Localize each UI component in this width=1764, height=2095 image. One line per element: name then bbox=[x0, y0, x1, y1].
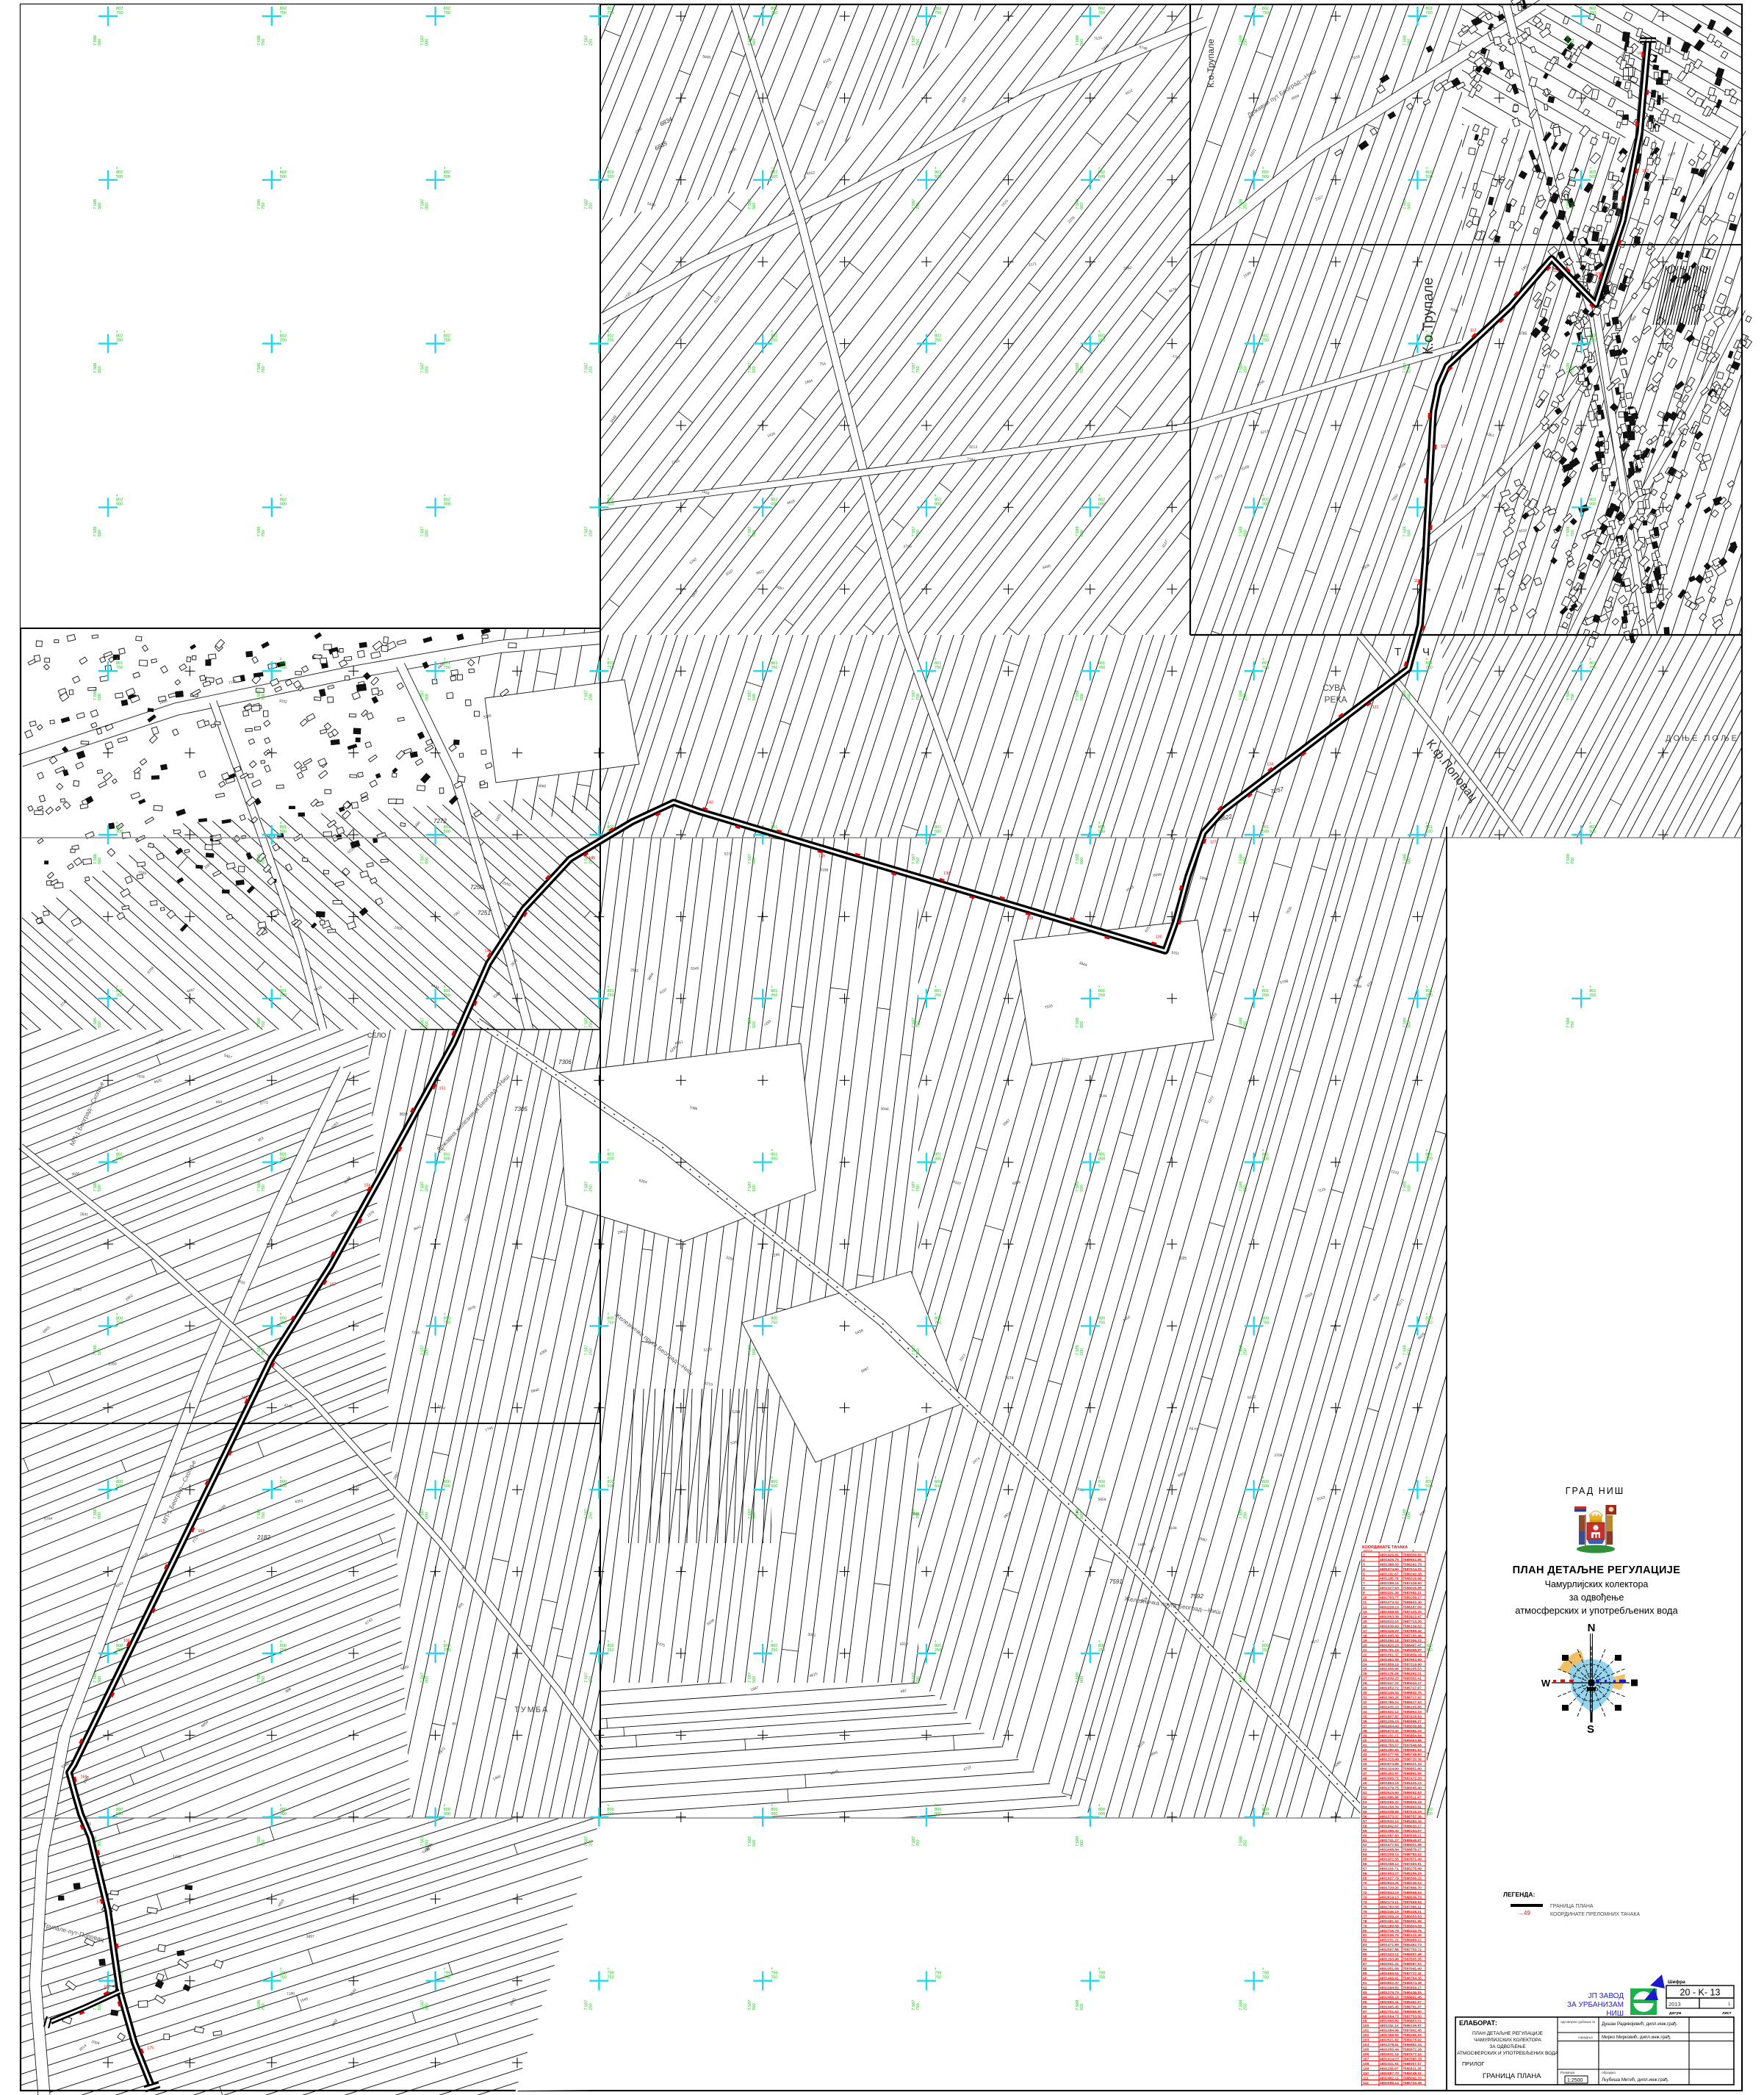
svg-text:7587580.78: 7587580.78 bbox=[1403, 2058, 1422, 2062]
svg-text:N: N bbox=[1588, 1622, 1596, 1634]
svg-text:7587713.20: 7587713.20 bbox=[1403, 1620, 1422, 1624]
svg-text:118: 118 bbox=[1414, 579, 1421, 583]
svg-text:250: 250 bbox=[1244, 530, 1248, 536]
svg-text:85: 85 bbox=[1363, 1952, 1367, 1957]
svg-text:500: 500 bbox=[98, 1021, 102, 1027]
svg-text:атмосферских и употребљених во: атмосферских и употребљених вода bbox=[1515, 1605, 1678, 1616]
svg-text:750: 750 bbox=[262, 202, 266, 209]
svg-text:4801645.39: 4801645.39 bbox=[1380, 1634, 1399, 1638]
svg-text:4: 4 bbox=[1262, 330, 1264, 334]
svg-text:160: 160 bbox=[242, 1396, 248, 1401]
svg-text:обрадио: обрадио bbox=[1602, 2071, 1616, 2075]
svg-text:4: 4 bbox=[771, 1312, 773, 1315]
svg-text:000: 000 bbox=[280, 1157, 287, 1162]
svg-text:3706: 3706 bbox=[1274, 1453, 1282, 1458]
svg-text:7587306.23: 7587306.23 bbox=[1403, 1639, 1422, 1643]
svg-text:000: 000 bbox=[425, 1021, 430, 1027]
svg-text:60: 60 bbox=[1363, 1833, 1367, 1838]
svg-text:000: 000 bbox=[425, 694, 430, 700]
svg-text:000: 000 bbox=[425, 366, 430, 373]
svg-text:4: 4 bbox=[771, 330, 773, 334]
svg-text:21: 21 bbox=[1363, 1648, 1367, 1653]
svg-text:102: 102 bbox=[1363, 2033, 1369, 2038]
svg-text:750: 750 bbox=[280, 1976, 287, 1980]
svg-text:250: 250 bbox=[588, 1021, 593, 1027]
svg-text:4802515.60: 4802515.60 bbox=[1380, 1791, 1399, 1795]
svg-text:2735: 2735 bbox=[904, 545, 912, 549]
svg-text:4: 4 bbox=[116, 166, 118, 170]
svg-text:500: 500 bbox=[1407, 1512, 1411, 1519]
svg-text:4802802.37: 4802802.37 bbox=[1380, 1981, 1399, 1986]
svg-text:73: 73 bbox=[1363, 1895, 1367, 1900]
svg-text:250: 250 bbox=[588, 39, 593, 46]
svg-text:500: 500 bbox=[1407, 1021, 1411, 1027]
svg-text:3046: 3046 bbox=[880, 1107, 889, 1112]
svg-text:4802168.55: 4802168.55 bbox=[1380, 2033, 1399, 2038]
svg-text:7586105.85: 7586105.85 bbox=[1403, 1706, 1422, 1710]
svg-text:4: 4 bbox=[771, 1803, 773, 1807]
svg-text:ЛЕГЕНДА:: ЛЕГЕНДА: bbox=[1503, 1891, 1535, 1898]
svg-text:77: 77 bbox=[1363, 1914, 1367, 1919]
svg-text:7587622.47: 7587622.47 bbox=[1403, 1615, 1422, 1620]
svg-text:4: 4 bbox=[1425, 2, 1428, 6]
svg-text:750: 750 bbox=[1098, 1976, 1105, 1980]
svg-text:250: 250 bbox=[588, 1348, 593, 1355]
svg-text:112: 112 bbox=[1470, 328, 1477, 333]
svg-text:4: 4 bbox=[116, 330, 118, 334]
svg-text:лист: лист bbox=[1722, 2011, 1732, 2016]
svg-text:27: 27 bbox=[1363, 1677, 1367, 1681]
svg-text:500: 500 bbox=[1407, 694, 1411, 700]
svg-text:4801952.72: 4801952.72 bbox=[1380, 1686, 1399, 1691]
svg-text:4801523.11: 4801523.11 bbox=[1380, 1952, 1399, 1957]
svg-text:500: 500 bbox=[752, 530, 757, 536]
svg-text:5: 5 bbox=[1363, 1572, 1365, 1576]
svg-text:4: 4 bbox=[280, 657, 282, 661]
svg-text:4: 4 bbox=[771, 985, 773, 988]
svg-text:5754: 5754 bbox=[44, 1517, 53, 1522]
svg-text:250: 250 bbox=[1244, 202, 1248, 209]
svg-text:4: 4 bbox=[1262, 1967, 1264, 1971]
svg-text:000: 000 bbox=[1262, 502, 1269, 506]
svg-text:500: 500 bbox=[935, 830, 941, 834]
svg-text:7588502.85: 7588502.85 bbox=[1403, 1558, 1422, 1562]
svg-text:4: 4 bbox=[607, 1639, 609, 1643]
svg-text:750: 750 bbox=[1262, 666, 1269, 670]
svg-text:000: 000 bbox=[444, 1157, 450, 1162]
svg-text:58: 58 bbox=[1363, 1824, 1367, 1828]
svg-text:4801068.12: 4801068.12 bbox=[1380, 1862, 1399, 1866]
svg-text:3: 3 bbox=[1363, 1562, 1365, 1567]
svg-text:750: 750 bbox=[1571, 202, 1575, 209]
svg-text:3839: 3839 bbox=[400, 1113, 408, 1117]
svg-text:1093: 1093 bbox=[73, 1287, 82, 1293]
svg-text:4: 4 bbox=[1098, 2, 1101, 6]
svg-text:16: 16 bbox=[1363, 1625, 1367, 1629]
svg-text:172: 172 bbox=[96, 1900, 103, 1904]
svg-text:54: 54 bbox=[1363, 1805, 1367, 1810]
svg-text:750: 750 bbox=[1571, 858, 1575, 864]
svg-text:111: 111 bbox=[1363, 2076, 1369, 2080]
svg-text:4801152.21: 4801152.21 bbox=[1380, 1733, 1399, 1738]
svg-text:W: W bbox=[1541, 1678, 1551, 1689]
svg-text:4801324.90: 4801324.90 bbox=[1380, 1767, 1399, 1772]
svg-text:4164: 4164 bbox=[1580, 277, 1588, 281]
svg-text:750: 750 bbox=[771, 11, 777, 15]
svg-text:3108: 3108 bbox=[1169, 1526, 1177, 1531]
svg-text:7588791.37: 7588791.37 bbox=[1403, 2005, 1422, 2009]
svg-text:7585538.21: 7585538.21 bbox=[1403, 1833, 1422, 1838]
svg-text:250: 250 bbox=[1244, 1185, 1248, 1191]
svg-text:35: 35 bbox=[1363, 1715, 1367, 1720]
svg-text:7586052.63: 7586052.63 bbox=[1403, 1791, 1422, 1795]
svg-text:127: 127 bbox=[1210, 840, 1217, 844]
svg-text:750: 750 bbox=[1262, 1320, 1269, 1325]
svg-text:250: 250 bbox=[588, 1676, 593, 1683]
svg-text:7585039.88: 7585039.88 bbox=[1403, 1724, 1422, 1728]
svg-text:7587753.50: 7587753.50 bbox=[1403, 2014, 1422, 2019]
svg-text:99: 99 bbox=[1363, 2019, 1367, 2024]
svg-text:7586105.53: 7586105.53 bbox=[1403, 1667, 1422, 1672]
svg-text:53: 53 bbox=[1363, 1800, 1367, 1805]
svg-text:7586804.69: 7586804.69 bbox=[1403, 1924, 1422, 1928]
svg-text:4: 4 bbox=[1425, 985, 1428, 988]
svg-text:7587450.91: 7587450.91 bbox=[1403, 1862, 1422, 1866]
svg-text:7587552.11: 7587552.11 bbox=[1403, 1591, 1422, 1595]
svg-text:000: 000 bbox=[1098, 502, 1105, 506]
svg-text:000: 000 bbox=[1080, 1185, 1084, 1191]
svg-text:7588187.69: 7588187.69 bbox=[1403, 1606, 1422, 1610]
svg-text:250: 250 bbox=[1244, 39, 1248, 46]
svg-text:000: 000 bbox=[425, 1512, 430, 1519]
svg-text:4: 4 bbox=[116, 1312, 118, 1315]
svg-text:500: 500 bbox=[98, 366, 102, 373]
svg-text:133: 133 bbox=[1026, 916, 1033, 921]
svg-text:750: 750 bbox=[262, 1021, 266, 1027]
svg-text:500: 500 bbox=[752, 1839, 757, 1846]
svg-text:250: 250 bbox=[1589, 339, 1596, 343]
svg-text:7588602.40: 7588602.40 bbox=[1403, 1600, 1422, 1605]
svg-text:500: 500 bbox=[116, 830, 123, 834]
svg-text:750: 750 bbox=[262, 858, 266, 864]
svg-text:Размера: Размера bbox=[1560, 2071, 1574, 2075]
svg-text:4: 4 bbox=[607, 330, 609, 334]
svg-text:7588249.53: 7588249.53 bbox=[1403, 1881, 1422, 1886]
svg-text:500: 500 bbox=[1407, 39, 1411, 46]
svg-text:500: 500 bbox=[1407, 530, 1411, 536]
svg-text:145: 145 bbox=[588, 856, 595, 860]
svg-text:7587902.45: 7587902.45 bbox=[1403, 2029, 1422, 2033]
svg-text:7588806.18: 7588806.18 bbox=[1403, 1800, 1422, 1805]
svg-text:250: 250 bbox=[444, 339, 450, 343]
svg-text:151: 151 bbox=[439, 1087, 446, 1091]
svg-text:000: 000 bbox=[1080, 39, 1084, 46]
svg-text:Мирко Мирковић, дипл.инж.грађ.: Мирко Мирковић, дипл.инж.грађ. bbox=[1602, 2035, 1671, 2040]
svg-text:169: 169 bbox=[81, 1775, 87, 1780]
svg-text:4801842.67: 4801842.67 bbox=[1380, 1824, 1399, 1828]
svg-text:7587559.94: 7587559.94 bbox=[1403, 1900, 1422, 1905]
svg-text:163: 163 bbox=[198, 1529, 205, 1534]
svg-text:4801260.85: 4801260.85 bbox=[1380, 1748, 1399, 1753]
svg-text:750: 750 bbox=[1425, 11, 1432, 15]
svg-text:750: 750 bbox=[262, 1512, 266, 1519]
svg-text:Чамурлијских колектора: Чамурлијских колектора bbox=[1545, 1579, 1649, 1589]
svg-text:80: 80 bbox=[1363, 1929, 1367, 1933]
svg-text:23: 23 bbox=[1363, 1658, 1367, 1662]
svg-text:7586717.92: 7586717.92 bbox=[1403, 1696, 1422, 1700]
svg-text:142: 142 bbox=[707, 801, 713, 805]
svg-text:38: 38 bbox=[1363, 1729, 1367, 1733]
svg-text:250: 250 bbox=[935, 993, 941, 998]
svg-text:4801863.16: 4801863.16 bbox=[1380, 1781, 1399, 1786]
svg-text:4802466.89: 4802466.89 bbox=[1380, 2019, 1399, 2024]
svg-text:1433: 1433 bbox=[173, 1855, 181, 1859]
svg-text:29: 29 bbox=[1363, 1686, 1367, 1691]
svg-text:000: 000 bbox=[1425, 1157, 1432, 1162]
svg-text:4: 4 bbox=[935, 1476, 937, 1479]
svg-text:7585863.33: 7585863.33 bbox=[1403, 1710, 1422, 1714]
svg-text:АТМОСФЕРСКИХ И УПОТРЕБЉЕНИХ ВО: АТМОСФЕРСКИХ И УПОТРЕБЉЕНИХ ВОДА bbox=[1457, 2051, 1558, 2056]
svg-text:000: 000 bbox=[425, 39, 430, 46]
svg-text:7587100.46: 7587100.46 bbox=[1403, 1634, 1422, 1638]
svg-text:500: 500 bbox=[98, 530, 102, 536]
svg-text:2013: 2013 bbox=[1668, 2001, 1681, 2008]
svg-text:7585972.28: 7585972.28 bbox=[1403, 2048, 1422, 2052]
svg-text:4801390.26: 4801390.26 bbox=[1380, 1696, 1399, 1700]
svg-text:4802145.34: 4802145.34 bbox=[1380, 1691, 1399, 1695]
svg-text:750: 750 bbox=[916, 1185, 921, 1191]
svg-text:250: 250 bbox=[588, 530, 593, 536]
svg-text:82: 82 bbox=[1363, 1938, 1367, 1943]
svg-text:750: 750 bbox=[916, 1348, 921, 1355]
svg-text:750: 750 bbox=[1571, 366, 1575, 373]
svg-text:000: 000 bbox=[935, 502, 941, 506]
svg-text:7587386.11: 7587386.11 bbox=[1403, 1905, 1422, 1909]
svg-text:87: 87 bbox=[1363, 1962, 1367, 1966]
svg-text:500: 500 bbox=[1098, 175, 1105, 179]
svg-text:4: 4 bbox=[935, 1149, 937, 1152]
svg-text:7587903.60: 7587903.60 bbox=[1403, 1658, 1422, 1662]
svg-text:500: 500 bbox=[752, 1512, 757, 1519]
svg-text:4: 4 bbox=[935, 657, 937, 661]
svg-text:750: 750 bbox=[916, 1021, 921, 1027]
svg-text:41: 41 bbox=[1363, 1743, 1367, 1747]
svg-text:4: 4 bbox=[444, 1639, 446, 1643]
svg-text:750: 750 bbox=[935, 1320, 941, 1325]
svg-text:4: 4 bbox=[935, 330, 937, 334]
svg-text:76: 76 bbox=[1363, 1910, 1367, 1914]
svg-text:7588757.36: 7588757.36 bbox=[1403, 1814, 1422, 1819]
svg-text:000: 000 bbox=[1098, 1812, 1105, 1816]
svg-text:500: 500 bbox=[1589, 830, 1596, 834]
svg-text:250: 250 bbox=[1098, 1648, 1105, 1653]
svg-text:7586506.15: 7586506.15 bbox=[1403, 1877, 1422, 1881]
svg-text:59: 59 bbox=[1363, 1829, 1367, 1833]
svg-text:250: 250 bbox=[607, 1648, 613, 1653]
svg-text:750: 750 bbox=[444, 666, 450, 670]
svg-text:71: 71 bbox=[1363, 1886, 1367, 1891]
svg-text:7586053.63: 7586053.63 bbox=[1403, 1914, 1422, 1919]
svg-text:106: 106 bbox=[1595, 272, 1602, 276]
svg-text:ГРАНИЦА ПЛАНА: ГРАНИЦА ПЛАНА bbox=[1550, 1904, 1594, 1909]
svg-text:250: 250 bbox=[588, 202, 593, 209]
svg-text:7306: 7306 bbox=[558, 1059, 572, 1066]
svg-text:4801925.75: 4801925.75 bbox=[1380, 1558, 1399, 1562]
svg-text:91: 91 bbox=[1363, 1981, 1367, 1986]
svg-text:000: 000 bbox=[1262, 1812, 1269, 1816]
svg-text:ТУМБА: ТУМБА bbox=[514, 1706, 549, 1714]
svg-text:4: 4 bbox=[935, 2, 937, 6]
svg-text:4801205.15: 4801205.15 bbox=[1380, 1720, 1399, 1724]
svg-text:500: 500 bbox=[444, 830, 450, 834]
svg-text:7588536.73: 7588536.73 bbox=[1403, 1895, 1422, 1900]
svg-text:750: 750 bbox=[262, 1839, 266, 1846]
svg-text:500: 500 bbox=[1425, 175, 1432, 179]
svg-text:10: 10 bbox=[1363, 1596, 1367, 1600]
svg-text:7586981.83: 7586981.83 bbox=[1403, 1748, 1422, 1753]
svg-text:4: 4 bbox=[1425, 1476, 1428, 1479]
svg-text:93: 93 bbox=[1363, 1991, 1367, 1995]
svg-text:105: 105 bbox=[1363, 2048, 1369, 2052]
svg-text:3897: 3897 bbox=[306, 1935, 314, 1939]
svg-text:4: 4 bbox=[607, 493, 609, 497]
svg-text:000: 000 bbox=[1080, 1512, 1084, 1519]
svg-text:4801974.90: 4801974.90 bbox=[1380, 1567, 1399, 1572]
svg-text:4802686.86: 4802686.86 bbox=[1380, 1796, 1399, 1800]
svg-text:36: 36 bbox=[1363, 1720, 1367, 1724]
svg-text:4801258.39: 4801258.39 bbox=[1380, 1805, 1399, 1810]
svg-text:4: 4 bbox=[1098, 821, 1101, 824]
svg-text:43: 43 bbox=[1363, 1753, 1367, 1757]
svg-text:4801388.33: 4801388.33 bbox=[1380, 1562, 1399, 1567]
svg-text:4802703.77: 4802703.77 bbox=[1380, 1596, 1399, 1600]
svg-text:750: 750 bbox=[262, 1348, 266, 1355]
svg-text:750: 750 bbox=[262, 1676, 266, 1683]
svg-text:50: 50 bbox=[1363, 1786, 1367, 1791]
svg-text:7588467.47: 7588467.47 bbox=[1403, 1643, 1422, 1647]
svg-text:5545: 5545 bbox=[691, 966, 699, 971]
svg-text:000: 000 bbox=[425, 1185, 430, 1191]
svg-text:4802687.70: 4802687.70 bbox=[1380, 2071, 1399, 2076]
svg-text:4801073.34: 4801073.34 bbox=[1380, 1600, 1399, 1605]
svg-text:4802331.30: 4802331.30 bbox=[1380, 1591, 1399, 1595]
svg-text:136: 136 bbox=[943, 872, 950, 876]
svg-text:7586139.62: 7586139.62 bbox=[1403, 1625, 1422, 1629]
svg-text:4802309.24: 4802309.24 bbox=[1380, 1914, 1399, 1919]
svg-text:7586045.40: 7586045.40 bbox=[1403, 1786, 1422, 1791]
svg-text:500: 500 bbox=[1589, 175, 1596, 179]
svg-text:63: 63 bbox=[1363, 1848, 1367, 1853]
svg-text:4: 4 bbox=[935, 1803, 937, 1807]
svg-text:500: 500 bbox=[1407, 858, 1411, 864]
svg-text:157: 157 bbox=[330, 1282, 336, 1287]
svg-text:7585727.97: 7585727.97 bbox=[1403, 1686, 1422, 1691]
svg-text:37: 37 bbox=[1363, 1724, 1367, 1728]
svg-text:44: 44 bbox=[1363, 1758, 1367, 1762]
svg-text:7524: 7524 bbox=[136, 1074, 145, 1079]
svg-text:750: 750 bbox=[262, 530, 266, 536]
svg-text:110: 110 bbox=[1363, 2071, 1369, 2076]
svg-text:750: 750 bbox=[607, 1976, 613, 1980]
svg-text:4802716.79: 4802716.79 bbox=[1380, 1929, 1399, 1933]
svg-text:4: 4 bbox=[607, 1312, 609, 1315]
svg-text:4801820.23: 4801820.23 bbox=[1380, 1643, 1399, 1647]
svg-text:7588026.88: 7588026.88 bbox=[1403, 1586, 1422, 1591]
svg-text:500: 500 bbox=[98, 858, 102, 864]
svg-text:750: 750 bbox=[935, 666, 941, 670]
svg-text:250: 250 bbox=[1262, 339, 1269, 343]
svg-text:7588720.39: 7588720.39 bbox=[1403, 1758, 1422, 1762]
svg-text:97: 97 bbox=[1363, 2010, 1367, 2014]
svg-text:750: 750 bbox=[607, 666, 613, 670]
svg-text:7587703.72: 7587703.72 bbox=[1403, 1948, 1422, 1952]
svg-text:7585063.86: 7585063.86 bbox=[1403, 1739, 1422, 1743]
svg-text:500: 500 bbox=[771, 1484, 777, 1489]
svg-text:6599: 6599 bbox=[1153, 873, 1162, 878]
svg-text:000: 000 bbox=[935, 1812, 941, 1816]
svg-text:7586436.15: 7586436.15 bbox=[1403, 1991, 1422, 1995]
svg-text:4801153.71: 4801153.71 bbox=[1380, 1867, 1399, 1872]
svg-text:7250: 7250 bbox=[470, 884, 483, 891]
svg-text:19: 19 bbox=[1363, 1639, 1367, 1643]
svg-text:4802597.88: 4802597.88 bbox=[1380, 1948, 1399, 1952]
svg-text:4: 4 bbox=[116, 821, 118, 824]
svg-text:4: 4 bbox=[1098, 493, 1101, 497]
svg-text:750: 750 bbox=[1098, 11, 1105, 15]
svg-text:000: 000 bbox=[1589, 502, 1596, 506]
svg-text:4: 4 bbox=[280, 985, 282, 988]
svg-text:7585258.17: 7585258.17 bbox=[1403, 1596, 1422, 1600]
svg-text:7585425.23: 7585425.23 bbox=[1403, 1781, 1422, 1786]
svg-text:66: 66 bbox=[1363, 1862, 1367, 1866]
svg-text:4802843.26: 4802843.26 bbox=[1380, 1881, 1399, 1886]
svg-text:750: 750 bbox=[916, 366, 921, 373]
svg-text:500: 500 bbox=[98, 1676, 102, 1683]
svg-text:4: 4 bbox=[935, 1967, 937, 1971]
svg-text:4: 4 bbox=[771, 2, 773, 6]
svg-text:4801653.27: 4801653.27 bbox=[1380, 1872, 1399, 1876]
svg-text:7587516.19: 7587516.19 bbox=[1403, 1810, 1422, 1814]
svg-text:4801050.44: 4801050.44 bbox=[1380, 2048, 1399, 2052]
svg-text:4801972.55: 4801972.55 bbox=[1380, 1858, 1399, 1862]
svg-text:52: 52 bbox=[1363, 1796, 1367, 1800]
svg-text:148: 148 bbox=[485, 949, 492, 954]
svg-text:7591: 7591 bbox=[1109, 1578, 1123, 1585]
svg-text:7588092.70: 7588092.70 bbox=[1403, 2076, 1422, 2080]
svg-text:95: 95 bbox=[1363, 2000, 1367, 2005]
svg-text:4: 4 bbox=[1098, 166, 1101, 170]
svg-text:4802619.13: 4802619.13 bbox=[1380, 1895, 1399, 1900]
svg-text:4802228.13: 4802228.13 bbox=[1380, 1606, 1399, 1610]
svg-text:К.о.Трупале: К.о.Трупале bbox=[1206, 38, 1216, 87]
svg-text:100: 100 bbox=[1637, 51, 1644, 56]
svg-text:4802533.12: 4802533.12 bbox=[1380, 1819, 1399, 1824]
svg-text:4: 4 bbox=[444, 821, 446, 824]
svg-text:4: 4 bbox=[1262, 1803, 1264, 1807]
svg-text:7305: 7305 bbox=[514, 1106, 528, 1113]
svg-text:250: 250 bbox=[116, 993, 123, 998]
svg-text:7587420.35: 7587420.35 bbox=[1403, 1610, 1422, 1614]
svg-text:250: 250 bbox=[116, 1648, 123, 1653]
svg-text:4: 4 bbox=[771, 1149, 773, 1152]
svg-text:750: 750 bbox=[1589, 666, 1596, 670]
svg-text:4801159.97: 4801159.97 bbox=[1380, 2067, 1399, 2071]
svg-text:56: 56 bbox=[1363, 1814, 1367, 1819]
svg-text:7295: 7295 bbox=[771, 1253, 780, 1258]
svg-text:500: 500 bbox=[607, 1484, 613, 1489]
svg-text:4: 4 bbox=[1589, 985, 1591, 988]
svg-text:2: 2 bbox=[1363, 1558, 1365, 1562]
